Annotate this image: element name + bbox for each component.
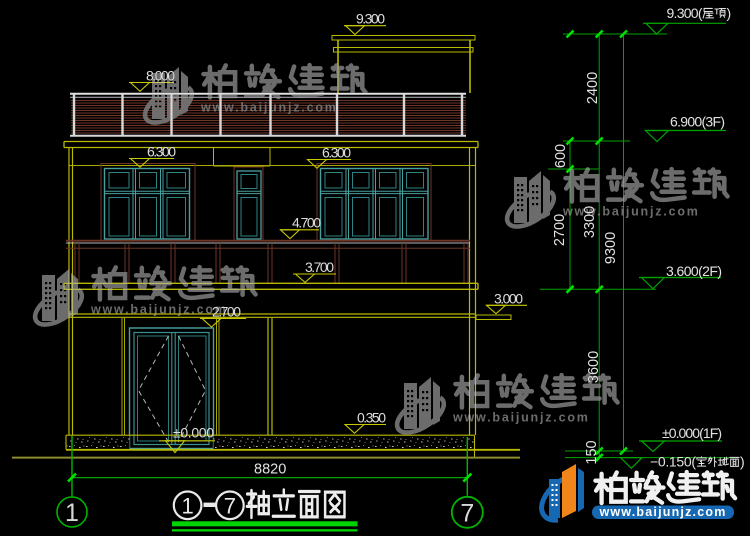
svg-text:150: 150 bbox=[584, 440, 600, 464]
svg-text:−0.150(: −0.150( bbox=[650, 454, 696, 470]
svg-text:4.700: 4.700 bbox=[292, 215, 321, 231]
svg-text:): ) bbox=[727, 5, 732, 21]
svg-text:600: 600 bbox=[553, 144, 569, 168]
svg-text:1: 1 bbox=[181, 493, 193, 518]
svg-text:6.300: 6.300 bbox=[322, 144, 351, 160]
svg-text:6.300: 6.300 bbox=[147, 143, 176, 159]
svg-text:6.900(3F): 6.900(3F) bbox=[670, 113, 725, 129]
svg-text:2700: 2700 bbox=[552, 214, 568, 246]
svg-text:7: 7 bbox=[224, 493, 236, 518]
svg-text:2400: 2400 bbox=[585, 72, 601, 104]
svg-text:): ) bbox=[740, 454, 745, 470]
svg-text:3.600(2F): 3.600(2F) bbox=[666, 263, 722, 279]
svg-text:1: 1 bbox=[65, 499, 79, 527]
svg-text:9.300(: 9.300( bbox=[667, 5, 703, 21]
svg-text:9.300: 9.300 bbox=[356, 11, 385, 27]
svg-text:7: 7 bbox=[460, 500, 474, 528]
svg-text:3.700: 3.700 bbox=[305, 259, 334, 275]
svg-text:0.350: 0.350 bbox=[357, 409, 386, 425]
svg-text:www.baijunjz.com: www.baijunjz.com bbox=[598, 505, 726, 519]
svg-text:±0.000: ±0.000 bbox=[173, 424, 214, 440]
svg-text:9300: 9300 bbox=[603, 232, 619, 264]
svg-text:3.000: 3.000 bbox=[494, 290, 523, 306]
svg-text:±0.000(1F): ±0.000(1F) bbox=[662, 425, 722, 441]
svg-text:8820: 8820 bbox=[254, 462, 286, 478]
